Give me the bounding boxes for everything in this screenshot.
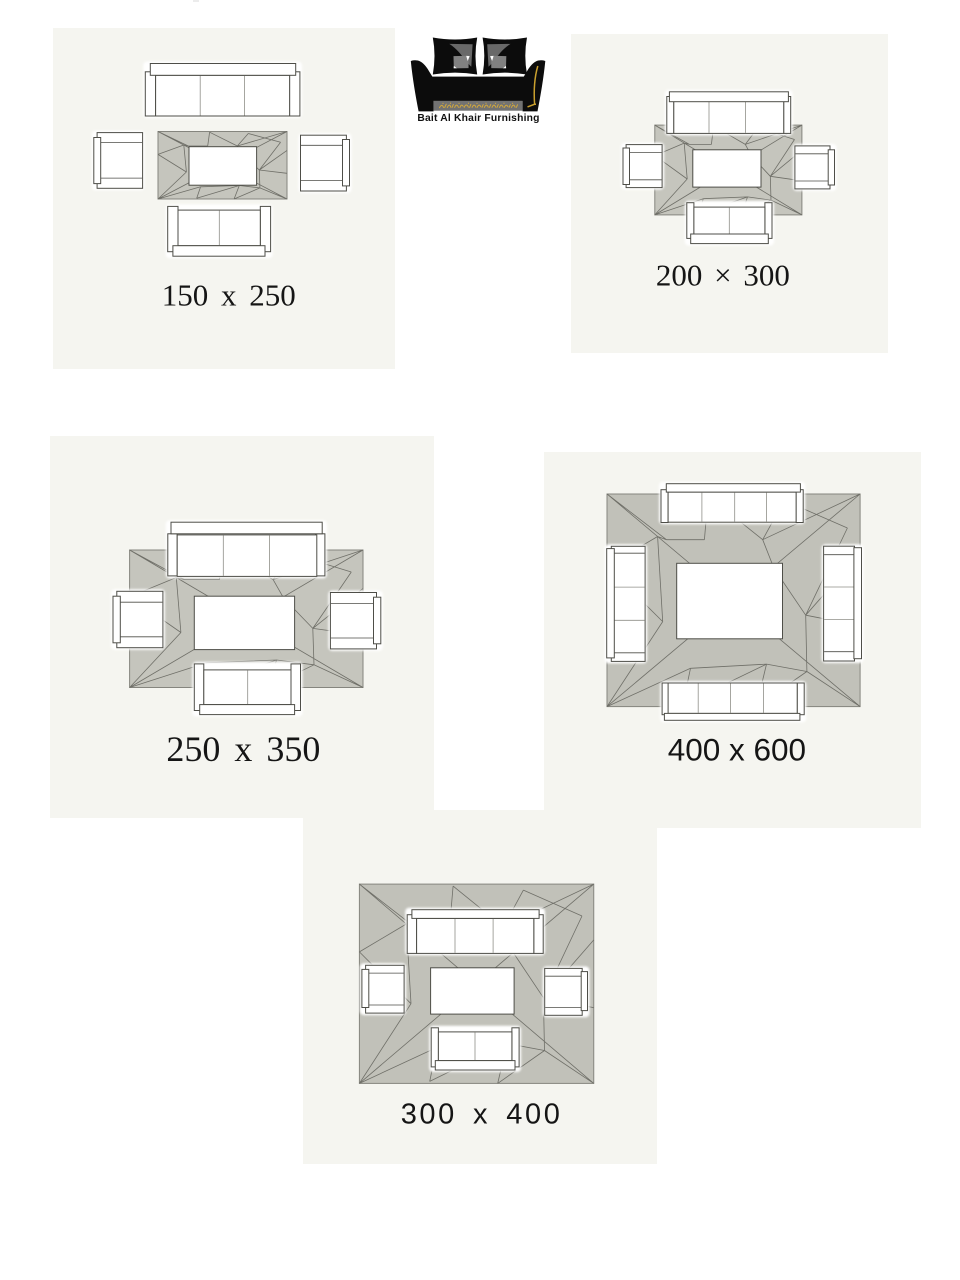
svg-text:200 × 300: 200 × 300 — [656, 257, 790, 292]
svg-text:300 x 400: 300 x 400 — [401, 1099, 563, 1131]
svg-text:Bait Al Khair Furnishing: Bait Al Khair Furnishing — [417, 113, 539, 124]
svg-text:150 x 250: 150 x 250 — [162, 277, 296, 312]
svg-text:250 x 350: 250 x 350 — [166, 729, 320, 769]
svg-text:400 x 600: 400 x 600 — [668, 732, 806, 768]
